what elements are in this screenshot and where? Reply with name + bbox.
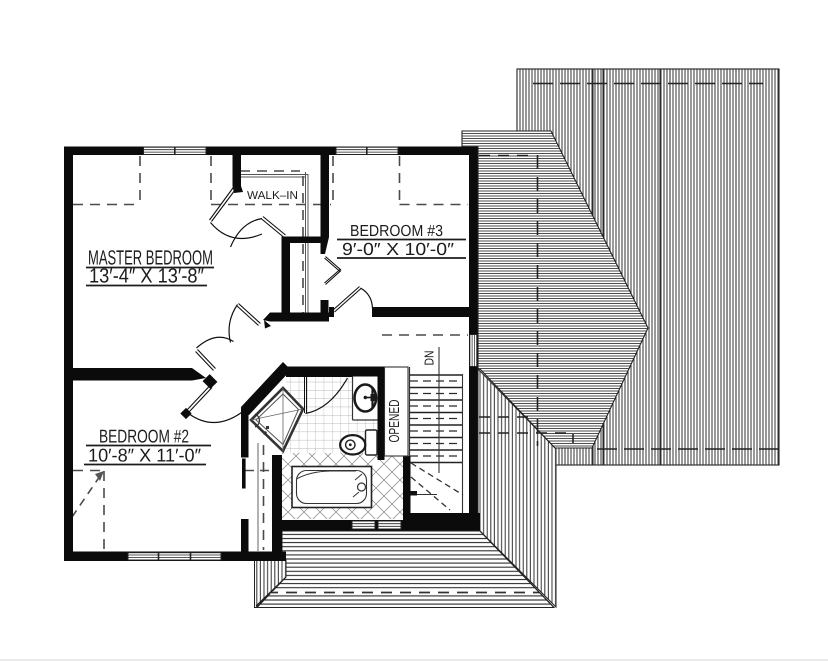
svg-text:10′-8″ X 11′-0″: 10′-8″ X 11′-0″ bbox=[88, 445, 201, 466]
svg-text:BEDROOM #3: BEDROOM #3 bbox=[350, 223, 443, 240]
svg-text:BEDROOM #2: BEDROOM #2 bbox=[99, 426, 189, 447]
svg-text:OPENED: OPENED bbox=[387, 400, 403, 443]
svg-text:WALK–IN: WALK–IN bbox=[247, 190, 298, 202]
svg-text:DN: DN bbox=[422, 351, 437, 366]
svg-text:9′-0″ X 10′-0″: 9′-0″ X 10′-0″ bbox=[342, 239, 454, 259]
svg-text:13′-4″ X 13′-8″: 13′-4″ X 13′-8″ bbox=[89, 265, 204, 288]
